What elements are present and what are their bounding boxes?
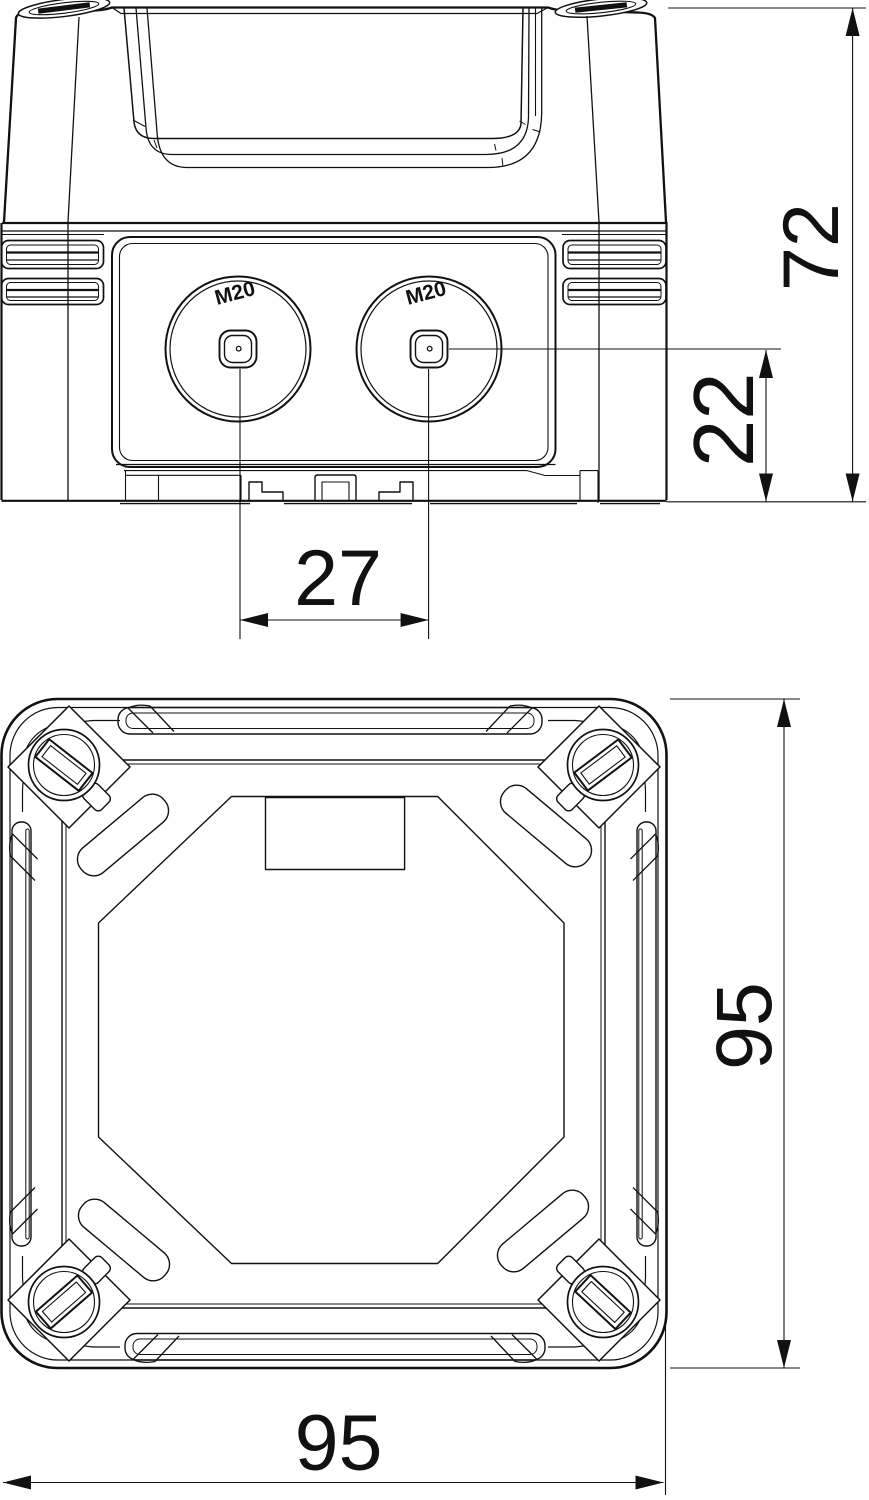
svg-text:22: 22 — [677, 372, 772, 467]
svg-text:27: 27 — [294, 533, 382, 622]
svg-text:95: 95 — [699, 982, 788, 1070]
svg-text:72: 72 — [766, 203, 855, 291]
svg-text:95: 95 — [295, 1398, 383, 1487]
